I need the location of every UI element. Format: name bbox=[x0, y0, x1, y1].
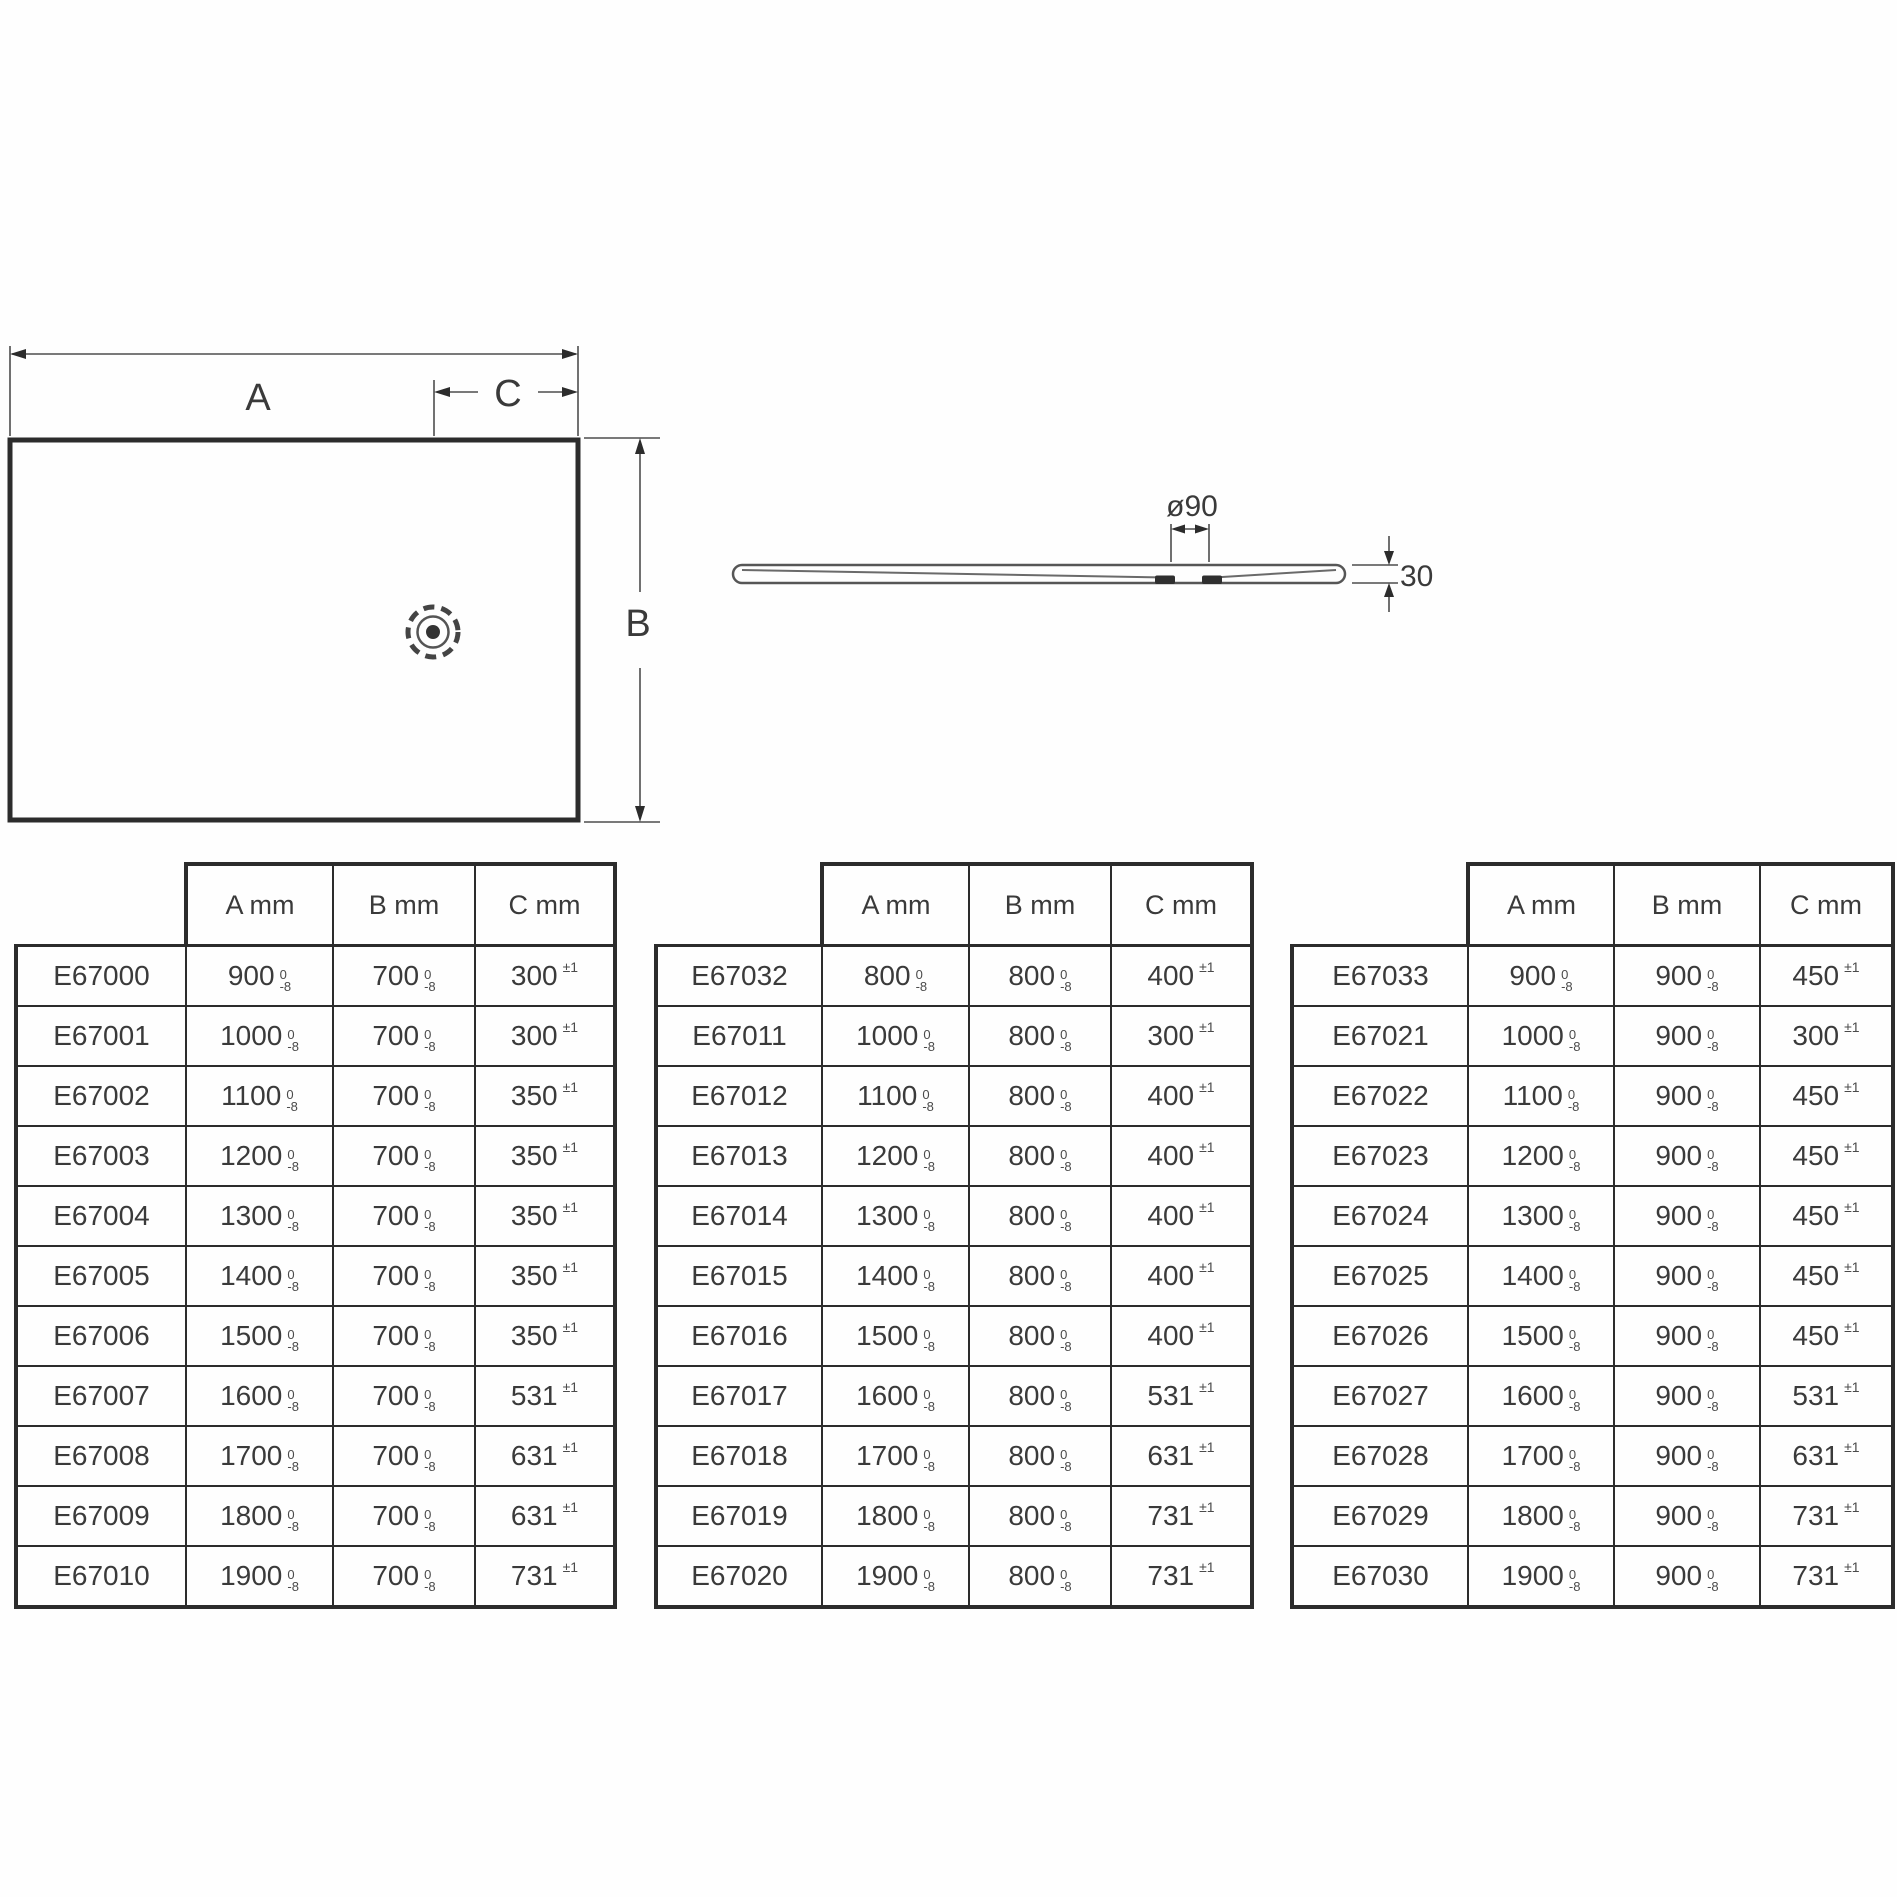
tolerance-lower: -8 bbox=[1060, 1161, 1072, 1173]
tolerance-sup: ±1 bbox=[563, 1199, 578, 1215]
tolerance-sup: ±1 bbox=[1199, 1319, 1214, 1335]
spec-table-700-series: A mm B mm C mm E670009000-87000-8300±1E6… bbox=[14, 862, 617, 1609]
tolerance-stack: 0-8 bbox=[287, 1569, 299, 1593]
dimension-c-cell: 531±1 bbox=[475, 1366, 615, 1426]
dimension-c-cell: 731±1 bbox=[1111, 1486, 1252, 1546]
tolerance-stack: 0-8 bbox=[424, 1449, 436, 1473]
arrowhead-right-icon bbox=[562, 349, 578, 359]
dimension-b-cell: 9000-8 bbox=[1614, 1366, 1760, 1426]
tolerance-stack: 0-8 bbox=[287, 1329, 299, 1353]
tolerance-lower: -8 bbox=[1561, 981, 1573, 993]
thickness-label: 30 bbox=[1400, 560, 1433, 593]
tolerance-lower: -8 bbox=[1060, 1101, 1072, 1113]
dimension-b-cell: 8000-8 bbox=[969, 1306, 1111, 1366]
product-code-cell: E67002 bbox=[16, 1066, 186, 1126]
dimension-c-cell: 631±1 bbox=[475, 1486, 615, 1546]
dimension-b-cell: 9000-8 bbox=[1614, 1486, 1760, 1546]
tolerance-stack: 0-8 bbox=[923, 1149, 935, 1173]
tolerance-stack: 0-8 bbox=[1569, 1449, 1581, 1473]
dimension-a-cell: 16000-8 bbox=[1468, 1366, 1614, 1426]
arrowhead-left-icon bbox=[10, 349, 26, 359]
tolerance-lower: -8 bbox=[287, 1041, 299, 1053]
tolerance-lower: -8 bbox=[1707, 1041, 1719, 1053]
arrowhead-right-icon bbox=[1195, 525, 1209, 534]
tolerance-lower: -8 bbox=[1569, 1341, 1581, 1353]
tolerance-stack: 0-8 bbox=[424, 1569, 436, 1593]
tolerance-sup: ±1 bbox=[1844, 1559, 1859, 1575]
drain-fitting-icon bbox=[1202, 576, 1222, 585]
tolerance-sup: ±1 bbox=[563, 1019, 578, 1035]
tolerance-stack: 0-8 bbox=[1060, 1389, 1072, 1413]
tolerance-stack: 0-8 bbox=[286, 1089, 298, 1113]
dimension-b-cell: 7000-8 bbox=[333, 1186, 475, 1246]
product-code-cell: E67001 bbox=[16, 1006, 186, 1066]
tolerance-lower: -8 bbox=[424, 1161, 436, 1173]
dimension-c-cell: 400±1 bbox=[1111, 1186, 1252, 1246]
dimension-c-cell: 300±1 bbox=[1760, 1006, 1893, 1066]
tolerance-lower: -8 bbox=[1707, 1581, 1719, 1593]
product-code-cell: E67009 bbox=[16, 1486, 186, 1546]
arrowhead-down-icon bbox=[1384, 551, 1394, 565]
diameter-label: ø90 bbox=[1166, 490, 1218, 523]
tolerance-stack: 0-8 bbox=[1060, 1089, 1072, 1113]
tolerance-stack: 0-8 bbox=[1707, 1569, 1719, 1593]
tolerance-sup: ±1 bbox=[1844, 959, 1859, 975]
spec-row: E6702211000-89000-8450±1 bbox=[1292, 1066, 1893, 1126]
tolerance-lower: -8 bbox=[1569, 1461, 1581, 1473]
dimension-b-cell: 8000-8 bbox=[969, 1366, 1111, 1426]
tolerance-stack: 0-8 bbox=[424, 1269, 436, 1293]
dimension-b-cell: 7000-8 bbox=[333, 1006, 475, 1066]
tolerance-lower: -8 bbox=[287, 1281, 299, 1293]
column-header-a: A mm bbox=[822, 864, 969, 946]
tray-plan-outline bbox=[10, 440, 578, 820]
tolerance-sup: ±1 bbox=[1199, 1379, 1214, 1395]
tolerance-sup: ±1 bbox=[1844, 1319, 1859, 1335]
tolerance-lower: -8 bbox=[922, 1101, 934, 1113]
tolerance-sup: ±1 bbox=[1199, 1259, 1214, 1275]
tolerance-stack: 0-8 bbox=[1060, 1209, 1072, 1233]
tolerance-lower: -8 bbox=[1060, 981, 1072, 993]
tolerance-sup: ±1 bbox=[1844, 1259, 1859, 1275]
tolerance-stack: 0-8 bbox=[1569, 1209, 1581, 1233]
tolerance-lower: -8 bbox=[1569, 1221, 1581, 1233]
tolerance-stack: 0-8 bbox=[424, 1389, 436, 1413]
dimension-a-cell: 10000-8 bbox=[186, 1006, 333, 1066]
dimension-thickness bbox=[1352, 536, 1398, 612]
product-code-cell: E67010 bbox=[16, 1546, 186, 1607]
spec-row: E6700110000-87000-8300±1 bbox=[16, 1006, 615, 1066]
spec-row: E670009000-87000-8300±1 bbox=[16, 946, 615, 1007]
tolerance-lower: -8 bbox=[1707, 1521, 1719, 1533]
product-code-cell: E67029 bbox=[1292, 1486, 1468, 1546]
tolerance-lower: -8 bbox=[287, 1461, 299, 1473]
spec-row: E670328000-88000-8400±1 bbox=[656, 946, 1252, 1007]
dimension-b-cell: 7000-8 bbox=[333, 1426, 475, 1486]
dimension-a-cell: 15000-8 bbox=[186, 1306, 333, 1366]
dimension-c-cell: 400±1 bbox=[1111, 1066, 1252, 1126]
tolerance-lower: -8 bbox=[424, 1461, 436, 1473]
product-code-cell: E67014 bbox=[656, 1186, 822, 1246]
dimension-c-cell: 300±1 bbox=[1111, 1006, 1252, 1066]
tolerance-lower: -8 bbox=[424, 1041, 436, 1053]
spec-row: E6700615000-87000-8350±1 bbox=[16, 1306, 615, 1366]
spec-row: E6702019000-88000-8731±1 bbox=[656, 1546, 1252, 1607]
arrowhead-up-icon bbox=[635, 438, 645, 454]
column-header-b: B mm bbox=[969, 864, 1111, 946]
tolerance-stack: 0-8 bbox=[923, 1389, 935, 1413]
tolerance-sup: ±1 bbox=[563, 1499, 578, 1515]
tolerance-stack: 0-8 bbox=[1707, 1269, 1719, 1293]
product-code-cell: E67006 bbox=[16, 1306, 186, 1366]
dimension-a-cell: 14000-8 bbox=[186, 1246, 333, 1306]
column-header-b: B mm bbox=[1614, 864, 1760, 946]
arrowhead-up-icon bbox=[1384, 583, 1394, 597]
dimension-b-cell: 7000-8 bbox=[333, 946, 475, 1007]
spec-row: E6702110000-89000-8300±1 bbox=[1292, 1006, 1893, 1066]
spec-row: E6701211000-88000-8400±1 bbox=[656, 1066, 1252, 1126]
tolerance-stack: 0-8 bbox=[1707, 1509, 1719, 1533]
tolerance-stack: 0-8 bbox=[923, 1449, 935, 1473]
drain-center-dot-icon bbox=[426, 625, 440, 639]
column-header-a: A mm bbox=[186, 864, 333, 946]
tolerance-lower: -8 bbox=[287, 1221, 299, 1233]
dimension-b-cell: 9000-8 bbox=[1614, 1546, 1760, 1607]
dimension-a-cell: 16000-8 bbox=[186, 1366, 333, 1426]
technical-drawing: A C B bbox=[0, 0, 1460, 870]
spec-row: E6700817000-87000-8631±1 bbox=[16, 1426, 615, 1486]
tolerance-stack: 0-8 bbox=[1060, 1329, 1072, 1353]
tolerance-lower: -8 bbox=[1707, 1461, 1719, 1473]
tolerance-sup: ±1 bbox=[1199, 1019, 1214, 1035]
dimension-b-cell: 8000-8 bbox=[969, 1006, 1111, 1066]
tolerance-lower: -8 bbox=[923, 1521, 935, 1533]
dimension-b-cell: 7000-8 bbox=[333, 1306, 475, 1366]
dimension-a-cell: 17000-8 bbox=[822, 1426, 969, 1486]
dimension-c-cell: 450±1 bbox=[1760, 1246, 1893, 1306]
dimension-b-cell: 8000-8 bbox=[969, 1426, 1111, 1486]
tolerance-sup: ±1 bbox=[1844, 1199, 1859, 1215]
tolerance-lower: -8 bbox=[1060, 1041, 1072, 1053]
tolerance-sup: ±1 bbox=[1199, 1559, 1214, 1575]
tolerance-lower: -8 bbox=[424, 1221, 436, 1233]
spec-row: E6702413000-89000-8450±1 bbox=[1292, 1186, 1893, 1246]
dimension-c-cell: 400±1 bbox=[1111, 1306, 1252, 1366]
tolerance-lower: -8 bbox=[1060, 1461, 1072, 1473]
tolerance-stack: 0-8 bbox=[916, 969, 928, 993]
dimension-b-cell: 8000-8 bbox=[969, 1246, 1111, 1306]
corner-spacer bbox=[656, 864, 822, 946]
drain-fitting-icon bbox=[1155, 576, 1175, 585]
dimension-c-cell: 531±1 bbox=[1111, 1366, 1252, 1426]
dimension-c-cell: 400±1 bbox=[1111, 1126, 1252, 1186]
dimension-b-cell: 7000-8 bbox=[333, 1066, 475, 1126]
dimension-b-cell: 7000-8 bbox=[333, 1246, 475, 1306]
product-code-cell: E67026 bbox=[1292, 1306, 1468, 1366]
spec-row: E6702817000-89000-8631±1 bbox=[1292, 1426, 1893, 1486]
dimension-b-cell: 8000-8 bbox=[969, 1186, 1111, 1246]
corner-spacer bbox=[16, 864, 186, 946]
dimension-c-cell: 400±1 bbox=[1111, 1246, 1252, 1306]
tolerance-lower: -8 bbox=[916, 981, 928, 993]
dimension-a-cell: 15000-8 bbox=[1468, 1306, 1614, 1366]
spec-row: E6701514000-88000-8400±1 bbox=[656, 1246, 1252, 1306]
spec-row: E6700514000-87000-8350±1 bbox=[16, 1246, 615, 1306]
tolerance-stack: 0-8 bbox=[287, 1029, 299, 1053]
dimension-a-cell: 14000-8 bbox=[822, 1246, 969, 1306]
arrowhead-right-icon bbox=[562, 387, 578, 397]
spec-row: E6701817000-88000-8631±1 bbox=[656, 1426, 1252, 1486]
dimension-c-cell: 350±1 bbox=[475, 1306, 615, 1366]
dimension-c-cell: 631±1 bbox=[475, 1426, 615, 1486]
tolerance-sup: ±1 bbox=[1844, 1079, 1859, 1095]
dimension-c-cell: 731±1 bbox=[1760, 1486, 1893, 1546]
tolerance-sup: ±1 bbox=[1199, 1139, 1214, 1155]
dimension-c-cell: 300±1 bbox=[475, 946, 615, 1007]
dimension-b-cell: 8000-8 bbox=[969, 1066, 1111, 1126]
spec-row: E6700716000-87000-8531±1 bbox=[16, 1366, 615, 1426]
tolerance-sup: ±1 bbox=[1844, 1019, 1859, 1035]
product-code-cell: E67033 bbox=[1292, 946, 1468, 1007]
tolerance-sup: ±1 bbox=[563, 1139, 578, 1155]
column-header-a: A mm bbox=[1468, 864, 1614, 946]
dimension-a bbox=[10, 346, 578, 436]
tolerance-stack: 0-8 bbox=[424, 1509, 436, 1533]
product-code-cell: E67022 bbox=[1292, 1066, 1468, 1126]
dimension-c-cell: 450±1 bbox=[1760, 1126, 1893, 1186]
dimension-c-cell: 300±1 bbox=[475, 1006, 615, 1066]
dimension-a-cell: 12000-8 bbox=[822, 1126, 969, 1186]
tolerance-lower: -8 bbox=[287, 1581, 299, 1593]
tolerance-lower: -8 bbox=[923, 1161, 935, 1173]
dimension-a-cell: 9000-8 bbox=[1468, 946, 1614, 1007]
tolerance-stack: 0-8 bbox=[1707, 1389, 1719, 1413]
tolerance-sup: ±1 bbox=[1199, 1439, 1214, 1455]
tolerance-lower: -8 bbox=[923, 1461, 935, 1473]
dimension-a-cell: 18000-8 bbox=[186, 1486, 333, 1546]
product-code-cell: E67032 bbox=[656, 946, 822, 1007]
tolerance-stack: 0-8 bbox=[424, 1209, 436, 1233]
tolerance-stack: 0-8 bbox=[1060, 1569, 1072, 1593]
dimension-b-cell: 9000-8 bbox=[1614, 1186, 1760, 1246]
dimension-b-cell: 8000-8 bbox=[969, 946, 1111, 1007]
dimension-a-cell: 15000-8 bbox=[822, 1306, 969, 1366]
spec-row: E6700312000-87000-8350±1 bbox=[16, 1126, 615, 1186]
arrowhead-left-icon bbox=[434, 387, 450, 397]
spec-table-800-series: A mm B mm C mm E670328000-88000-8400±1E6… bbox=[654, 862, 1254, 1609]
tolerance-stack: 0-8 bbox=[1568, 1089, 1580, 1113]
dimension-a-cell: 18000-8 bbox=[822, 1486, 969, 1546]
tolerance-stack: 0-8 bbox=[424, 1149, 436, 1173]
product-code-cell: E67021 bbox=[1292, 1006, 1468, 1066]
product-code-cell: E67007 bbox=[16, 1366, 186, 1426]
tolerance-lower: -8 bbox=[1707, 1401, 1719, 1413]
dimension-b-cell: 9000-8 bbox=[1614, 1006, 1760, 1066]
tolerance-sup: ±1 bbox=[563, 959, 578, 975]
tolerance-lower: -8 bbox=[424, 981, 436, 993]
dimension-b-cell: 8000-8 bbox=[969, 1126, 1111, 1186]
product-code-cell: E67013 bbox=[656, 1126, 822, 1186]
product-code-cell: E67000 bbox=[16, 946, 186, 1007]
spec-row: E6701312000-88000-8400±1 bbox=[656, 1126, 1252, 1186]
dimension-c-cell: 631±1 bbox=[1760, 1426, 1893, 1486]
corner-spacer bbox=[1292, 864, 1468, 946]
dimension-c-cell: 731±1 bbox=[1111, 1546, 1252, 1607]
tolerance-stack: 0-8 bbox=[1569, 1509, 1581, 1533]
dimension-a-cell: 14000-8 bbox=[1468, 1246, 1614, 1306]
tolerance-stack: 0-8 bbox=[923, 1209, 935, 1233]
tolerance-lower: -8 bbox=[1060, 1221, 1072, 1233]
tolerance-stack: 0-8 bbox=[424, 1329, 436, 1353]
dimension-b-cell: 9000-8 bbox=[1614, 1126, 1760, 1186]
tolerance-lower: -8 bbox=[287, 1341, 299, 1353]
tolerance-stack: 0-8 bbox=[1707, 969, 1719, 993]
dimension-c-cell: 450±1 bbox=[1760, 1306, 1893, 1366]
tolerance-stack: 0-8 bbox=[424, 1029, 436, 1053]
tolerance-lower: -8 bbox=[424, 1281, 436, 1293]
tolerance-lower: -8 bbox=[1707, 1221, 1719, 1233]
dimension-a-cell: 17000-8 bbox=[186, 1426, 333, 1486]
dimension-b-cell: 9000-8 bbox=[1614, 1426, 1760, 1486]
plan-view: A C B bbox=[10, 346, 660, 822]
dimension-a-label: A bbox=[245, 377, 271, 419]
tolerance-stack: 0-8 bbox=[1707, 1149, 1719, 1173]
tolerance-lower: -8 bbox=[1569, 1581, 1581, 1593]
tolerance-stack: 0-8 bbox=[1569, 1149, 1581, 1173]
product-code-cell: E67008 bbox=[16, 1426, 186, 1486]
spec-row: E6701716000-88000-8531±1 bbox=[656, 1366, 1252, 1426]
tolerance-stack: 0-8 bbox=[1569, 1389, 1581, 1413]
tolerance-sup: ±1 bbox=[1199, 1199, 1214, 1215]
spec-row: E6702716000-89000-8531±1 bbox=[1292, 1366, 1893, 1426]
tolerance-stack: 0-8 bbox=[1707, 1449, 1719, 1473]
spec-row: E6700413000-87000-8350±1 bbox=[16, 1186, 615, 1246]
product-code-cell: E67015 bbox=[656, 1246, 822, 1306]
product-code-cell: E67003 bbox=[16, 1126, 186, 1186]
dimension-a-cell: 19000-8 bbox=[186, 1546, 333, 1607]
tolerance-lower: -8 bbox=[1569, 1521, 1581, 1533]
product-code-cell: E67004 bbox=[16, 1186, 186, 1246]
dimension-a-cell: 11000-8 bbox=[822, 1066, 969, 1126]
product-code-cell: E67024 bbox=[1292, 1186, 1468, 1246]
tolerance-sup: ±1 bbox=[1199, 1079, 1214, 1095]
column-header-c: C mm bbox=[475, 864, 615, 946]
tolerance-stack: 0-8 bbox=[1060, 969, 1072, 993]
dimension-c-label: C bbox=[494, 373, 521, 415]
spec-row: E6701918000-88000-8731±1 bbox=[656, 1486, 1252, 1546]
dimension-c-cell: 400±1 bbox=[1111, 946, 1252, 1007]
spec-row: E6702514000-89000-8450±1 bbox=[1292, 1246, 1893, 1306]
product-code-cell: E67018 bbox=[656, 1426, 822, 1486]
tolerance-stack: 0-8 bbox=[1060, 1269, 1072, 1293]
tolerance-stack: 0-8 bbox=[1707, 1209, 1719, 1233]
tolerance-lower: -8 bbox=[1060, 1581, 1072, 1593]
tolerance-stack: 0-8 bbox=[923, 1269, 935, 1293]
spec-row: E6702615000-89000-8450±1 bbox=[1292, 1306, 1893, 1366]
tolerance-lower: -8 bbox=[923, 1221, 935, 1233]
spec-table-900-series: A mm B mm C mm E670339000-89000-8450±1E6… bbox=[1290, 862, 1895, 1609]
spec-row: E6701615000-88000-8400±1 bbox=[656, 1306, 1252, 1366]
tolerance-lower: -8 bbox=[424, 1341, 436, 1353]
dimension-c-cell: 631±1 bbox=[1111, 1426, 1252, 1486]
tolerance-stack: 0-8 bbox=[1569, 1029, 1581, 1053]
tolerance-stack: 0-8 bbox=[1060, 1029, 1072, 1053]
dimension-c-cell: 350±1 bbox=[475, 1126, 615, 1186]
tolerance-stack: 0-8 bbox=[424, 1089, 436, 1113]
arrowhead-left-icon bbox=[1171, 525, 1185, 534]
dimension-a-cell: 16000-8 bbox=[822, 1366, 969, 1426]
tolerance-lower: -8 bbox=[1568, 1101, 1580, 1113]
product-code-cell: E67025 bbox=[1292, 1246, 1468, 1306]
tolerance-stack: 0-8 bbox=[1060, 1149, 1072, 1173]
tolerance-stack: 0-8 bbox=[1060, 1509, 1072, 1533]
tolerance-lower: -8 bbox=[1060, 1401, 1072, 1413]
dimension-b-label: B bbox=[625, 603, 650, 645]
product-code-cell: E67011 bbox=[656, 1006, 822, 1066]
tray-profile-outline bbox=[733, 565, 1345, 583]
spec-row: E6701413000-88000-8400±1 bbox=[656, 1186, 1252, 1246]
tolerance-stack: 0-8 bbox=[287, 1449, 299, 1473]
tolerance-lower: -8 bbox=[1707, 1101, 1719, 1113]
dimension-c-cell: 450±1 bbox=[1760, 1186, 1893, 1246]
tolerance-lower: -8 bbox=[1060, 1281, 1072, 1293]
tolerance-stack: 0-8 bbox=[922, 1089, 934, 1113]
tolerance-sup: ±1 bbox=[1844, 1439, 1859, 1455]
tolerance-lower: -8 bbox=[1569, 1401, 1581, 1413]
product-code-cell: E67019 bbox=[656, 1486, 822, 1546]
tolerance-lower: -8 bbox=[424, 1521, 436, 1533]
dimension-c-cell: 450±1 bbox=[1760, 946, 1893, 1007]
tolerance-lower: -8 bbox=[1569, 1161, 1581, 1173]
dimension-b-cell: 9000-8 bbox=[1614, 1246, 1760, 1306]
tolerance-stack: 0-8 bbox=[1561, 969, 1573, 993]
tolerance-stack: 0-8 bbox=[923, 1029, 935, 1053]
tolerance-lower: -8 bbox=[923, 1401, 935, 1413]
tolerance-stack: 0-8 bbox=[424, 969, 436, 993]
tolerance-sup: ±1 bbox=[563, 1379, 578, 1395]
tolerance-sup: ±1 bbox=[563, 1319, 578, 1335]
dimension-diameter bbox=[1171, 524, 1209, 562]
dimension-b-cell: 7000-8 bbox=[333, 1126, 475, 1186]
profile-view: ø90 30 bbox=[733, 490, 1433, 612]
tolerance-sup: ±1 bbox=[1199, 1499, 1214, 1515]
tolerance-stack: 0-8 bbox=[287, 1389, 299, 1413]
tolerance-lower: -8 bbox=[923, 1581, 935, 1593]
dimension-a-cell: 9000-8 bbox=[186, 946, 333, 1007]
tolerance-sup: ±1 bbox=[1844, 1379, 1859, 1395]
dimension-b-cell: 9000-8 bbox=[1614, 1306, 1760, 1366]
dimension-c-cell: 450±1 bbox=[1760, 1066, 1893, 1126]
tolerance-lower: -8 bbox=[923, 1041, 935, 1053]
tolerance-lower: -8 bbox=[424, 1401, 436, 1413]
tolerance-stack: 0-8 bbox=[287, 1209, 299, 1233]
spec-row: E6701019000-87000-8731±1 bbox=[16, 1546, 615, 1607]
dimension-a-cell: 8000-8 bbox=[822, 946, 969, 1007]
tolerance-lower: -8 bbox=[280, 981, 292, 993]
tolerance-sup: ±1 bbox=[563, 1439, 578, 1455]
tolerance-stack: 0-8 bbox=[923, 1329, 935, 1353]
dimension-c-cell: 531±1 bbox=[1760, 1366, 1893, 1426]
tolerance-sup: ±1 bbox=[563, 1079, 578, 1095]
spec-sheet: A C B bbox=[0, 0, 1897, 1897]
product-code-cell: E67005 bbox=[16, 1246, 186, 1306]
dimension-a-cell: 19000-8 bbox=[1468, 1546, 1614, 1607]
product-code-cell: E67017 bbox=[656, 1366, 822, 1426]
product-code-cell: E67030 bbox=[1292, 1546, 1468, 1607]
tolerance-stack: 0-8 bbox=[287, 1269, 299, 1293]
tolerance-lower: -8 bbox=[923, 1341, 935, 1353]
tolerance-stack: 0-8 bbox=[923, 1509, 935, 1533]
